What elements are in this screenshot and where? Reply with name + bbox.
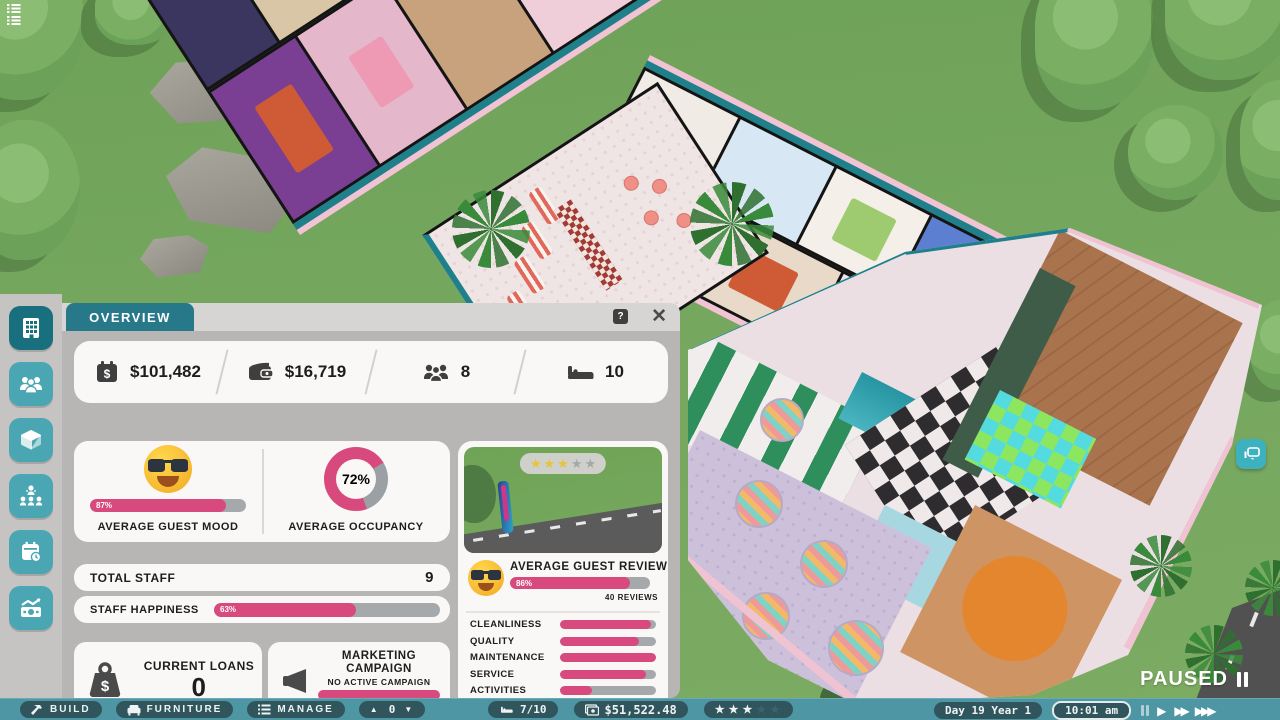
overview-panel-body: $ $101,482 $16,719	[62, 331, 680, 698]
money-chart-icon	[18, 596, 44, 620]
category-row: ACTIVITIES	[470, 685, 656, 696]
review-summary: AVERAGE GUEST REVIEW 86% 40 REVIEWS	[458, 557, 668, 609]
overview-panel: OVERVIEW ? ✕ $ $101,482	[62, 303, 680, 698]
motel-thumbnail: ★★★★★	[464, 447, 662, 553]
hotel-star-rating[interactable]: ★★★★★	[704, 701, 793, 718]
stats-bar: $ $101,482 $16,719	[74, 341, 668, 403]
guest-mood-block: 87% AVERAGE GUEST MOOD	[74, 441, 262, 542]
occupancy-label: AVERAGE OCCUPANCY	[262, 521, 450, 533]
paused-label: PAUSED	[1140, 668, 1228, 691]
building-icon	[19, 316, 43, 340]
tree	[1128, 105, 1223, 200]
staff-happiness-bar: 63%	[214, 603, 440, 617]
sofa-icon	[127, 704, 141, 716]
review-stars: ★★★★★	[520, 453, 606, 474]
category-row: QUALITY	[470, 636, 656, 647]
guests-value: 8	[461, 362, 470, 382]
total-staff-row: TOTAL STAFF 9	[74, 564, 450, 591]
wallet-icon	[247, 360, 275, 384]
review-count: 40 REVIEWS	[605, 593, 658, 602]
svg-text:$: $	[104, 367, 111, 381]
money-value: $51,522.48	[605, 703, 677, 717]
fastest-forward-button[interactable]: ▶▶▶	[1195, 704, 1214, 718]
date-value: Day 19 Year 1	[945, 704, 1031, 717]
floor-value: 0	[389, 703, 396, 716]
close-icon[interactable]: ✕	[651, 305, 667, 329]
star-icon: ★	[729, 703, 741, 716]
hammer-icon	[31, 704, 44, 716]
svg-text:$: $	[101, 678, 110, 695]
wallet-value: $16,719	[285, 362, 346, 382]
guest-mood-label: AVERAGE GUEST MOOD	[74, 521, 262, 533]
sunglasses-emoji-icon	[468, 560, 504, 596]
tree	[0, 120, 80, 260]
current-loans-label: CURRENT LOANS	[136, 659, 262, 673]
help-button[interactable]: ?	[613, 309, 628, 324]
total-staff-label: TOTAL STAFF	[90, 571, 175, 585]
occupancy-value: 72%	[342, 471, 370, 487]
sidebar-item-guests[interactable]	[9, 362, 53, 406]
category-row: MAINTENANCE	[470, 652, 656, 663]
mood-occupancy-card: 87% AVERAGE GUEST MOOD 72% AVERAGE OCCUP…	[74, 441, 450, 542]
category-bar	[560, 686, 656, 695]
rooms-status[interactable]: 7/10	[488, 701, 558, 718]
category-label: SERVICE	[470, 669, 514, 680]
bed-icon	[565, 360, 595, 384]
chat-button[interactable]	[1236, 439, 1266, 469]
star-icon: ★	[756, 703, 768, 716]
manage-button[interactable]: MANAGE	[247, 701, 344, 718]
sidebar-item-rooms[interactable]	[9, 418, 53, 462]
guests-icon	[18, 373, 44, 395]
star-icon: ★	[770, 703, 782, 716]
category-bar	[560, 670, 656, 679]
guest-review-card: ★★★★★ AVERAGE GUEST REVIEW 86% 40 REVIEW…	[458, 441, 668, 719]
bottom-bar: BUILD FURNITURE MANAGE	[0, 698, 1280, 720]
palm-tree	[690, 182, 774, 266]
palm-tree	[1245, 560, 1280, 616]
star-icon: ★	[743, 703, 755, 716]
manage-list-icon	[258, 704, 271, 715]
occupancy-donut: 72%	[324, 447, 388, 511]
tree	[464, 465, 496, 523]
pause-icon	[1237, 672, 1248, 687]
sidebar-item-schedule[interactable]	[9, 530, 53, 574]
fast-forward-button[interactable]: ▶▶	[1174, 704, 1186, 718]
sidebar-item-staff[interactable]	[9, 474, 53, 518]
stat-balance: $ $101,482	[74, 359, 221, 385]
loan-weight-icon: $	[85, 662, 125, 700]
tree	[1165, 0, 1280, 80]
sidebar-item-finance[interactable]	[9, 586, 53, 630]
stat-guests: 8	[372, 360, 519, 384]
money-status[interactable]: $51,522.48	[574, 701, 688, 718]
date-display: Day 19 Year 1	[934, 702, 1042, 719]
staff-org-icon	[18, 484, 44, 508]
tree	[1035, 0, 1155, 110]
category-row: SERVICE	[470, 669, 656, 680]
star-icon: ★	[715, 703, 727, 716]
game-screen: OVERVIEW ? ✕ $ $101,482	[0, 0, 1280, 720]
star-icon: ★	[584, 456, 596, 472]
floor-up-icon[interactable]: ▲	[370, 705, 380, 714]
beds-value: 10	[605, 362, 624, 382]
pause-button[interactable]	[1141, 705, 1149, 716]
category-label: CLEANLINESS	[470, 619, 541, 630]
category-label: ACTIVITIES	[470, 685, 526, 696]
tree	[1240, 80, 1280, 200]
category-bar	[560, 637, 656, 646]
chat-bubbles-icon	[1243, 447, 1260, 462]
palm-tree	[1130, 535, 1192, 597]
paused-indicator: PAUSED	[1140, 668, 1248, 691]
guest-mood-bar: 87%	[90, 499, 246, 512]
palm-tree	[452, 190, 530, 268]
list-menu-icon[interactable]	[7, 4, 21, 13]
cash-icon	[585, 704, 599, 716]
bed-icon	[499, 704, 514, 715]
total-staff-value: 9	[425, 569, 434, 586]
guests-count-icon	[421, 360, 451, 384]
category-bar	[560, 653, 656, 662]
marketing-status: NO ACTIVE CAMPAIGN	[316, 677, 442, 687]
floor-selector: ▲ 0 ▼	[359, 701, 425, 718]
rooms-value: 7/10	[520, 703, 547, 716]
furniture-button[interactable]: FURNITURE	[116, 701, 234, 718]
category-label: QUALITY	[470, 636, 515, 647]
review-title: AVERAGE GUEST REVIEW	[510, 561, 667, 573]
list-menu-icon[interactable]	[7, 16, 21, 25]
category-bar	[560, 620, 656, 629]
tab-overview[interactable]: OVERVIEW	[66, 303, 194, 331]
category-row: CLEANLINESS	[470, 619, 656, 630]
build-button[interactable]: BUILD	[20, 701, 102, 718]
megaphone-icon	[280, 666, 312, 696]
stat-wallet: $16,719	[223, 360, 370, 384]
staff-happiness-label: STAFF HAPPINESS	[90, 604, 202, 616]
play-button[interactable]: ▶	[1157, 704, 1166, 718]
star-icon: ★	[557, 456, 569, 472]
box-icon	[19, 428, 43, 452]
time-display: 10:01 am	[1052, 701, 1131, 720]
category-label: MAINTENANCE	[470, 652, 545, 663]
time-value: 10:01 am	[1065, 704, 1118, 717]
stat-beds: 10	[521, 360, 668, 384]
sidebar-item-hotel[interactable]	[9, 306, 53, 350]
star-icon: ★	[571, 456, 583, 472]
divider	[466, 611, 660, 613]
sunglasses-emoji-icon	[144, 445, 192, 493]
calendar-dollar-icon: $	[94, 359, 120, 385]
motel-sign	[497, 481, 513, 534]
marketing-title: MARKETING CAMPAIGN	[316, 650, 442, 675]
calendar-clock-icon	[19, 540, 43, 564]
rock	[136, 228, 213, 284]
overview-panel-header: OVERVIEW ? ✕	[62, 303, 680, 331]
occupancy-block: 72% AVERAGE OCCUPANCY	[262, 441, 450, 542]
floor-down-icon[interactable]: ▼	[404, 705, 414, 714]
star-icon: ★	[530, 456, 542, 472]
staff-happiness-row: STAFF HAPPINESS 63%	[74, 596, 450, 623]
review-bar: 86%	[510, 577, 650, 589]
star-icon: ★	[544, 456, 556, 472]
balance-value: $101,482	[130, 362, 201, 382]
